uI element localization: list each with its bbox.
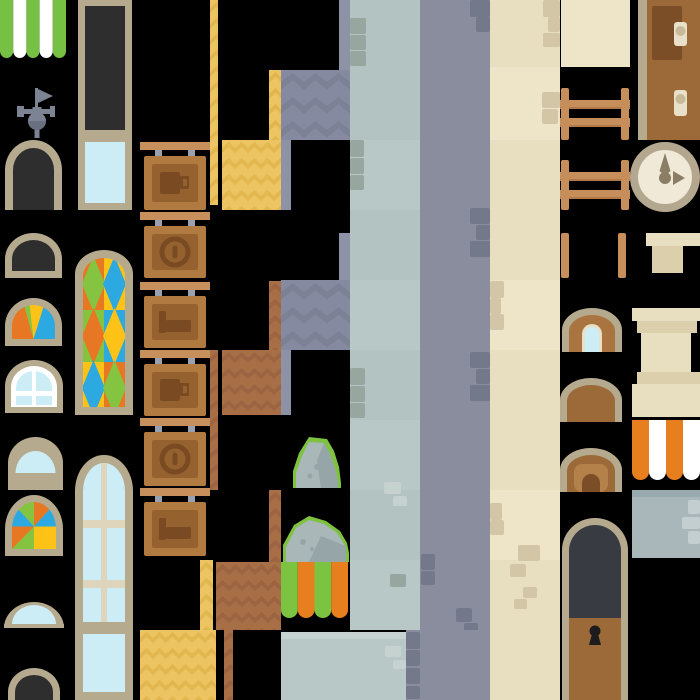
wall-sliver-brown-bottom xyxy=(224,630,233,700)
fence-upper xyxy=(560,88,630,140)
wall-block-yellow-c xyxy=(222,140,281,210)
door-arch-dark xyxy=(5,140,62,210)
sign-coin-2 xyxy=(140,418,210,486)
pillar xyxy=(632,308,700,417)
wall-strip-brown-mid xyxy=(210,350,218,490)
wall-strip-gray-mid xyxy=(339,233,350,280)
door-arch-panel xyxy=(560,448,622,492)
door-arch-window xyxy=(562,308,622,352)
weathervane xyxy=(15,88,55,138)
pillar-capital xyxy=(646,233,700,273)
awning-green-white xyxy=(0,0,66,58)
wall-bottom-slate xyxy=(406,630,490,700)
wall-strip-gray-top xyxy=(339,0,350,70)
door-arch-plain xyxy=(560,378,622,422)
wall-block-brown-c xyxy=(222,350,281,415)
window-tall-arched xyxy=(75,455,133,700)
wall-block-light xyxy=(632,490,700,558)
awning-orange-white xyxy=(632,420,700,480)
fence-lower xyxy=(560,160,630,210)
wall-strip-yellow-c xyxy=(269,70,281,140)
awning-green-orange xyxy=(281,562,348,618)
window-stained-fan-large xyxy=(5,495,63,556)
sign-bed-1 xyxy=(140,282,210,348)
wall-notch-gray-mid xyxy=(281,350,291,415)
wall-block-gray-mid xyxy=(281,280,350,350)
wall-bottom-sage xyxy=(281,632,406,700)
sprite-atlas xyxy=(0,0,700,700)
window-arch-dome xyxy=(8,437,63,490)
wall-block-yellow-bottom xyxy=(140,630,216,700)
wall-block-cream-top xyxy=(561,0,630,67)
wall-block-gray-top xyxy=(281,70,350,140)
rock-large xyxy=(281,516,349,562)
clock xyxy=(630,142,700,212)
wall-notch-gray-top xyxy=(281,140,291,210)
window-tall-stained xyxy=(75,250,133,415)
wall-strip-yellow-top xyxy=(210,0,218,205)
wall-column-sage xyxy=(350,0,420,630)
sign-mug-1 xyxy=(140,142,210,210)
rock-small xyxy=(287,437,341,488)
door-tall-keyhole xyxy=(562,518,628,700)
sign-mug-2 xyxy=(140,350,210,416)
door-arch-dark-cut xyxy=(8,668,60,700)
window-arch-four-pane xyxy=(5,360,63,413)
window-stained-fan-small xyxy=(5,298,62,346)
sign-bed-2 xyxy=(140,488,210,556)
wall-column-slate xyxy=(420,0,490,630)
wall-strip-brown-d xyxy=(269,490,281,562)
wall-column-cream xyxy=(490,0,560,700)
door-brown-top xyxy=(638,0,700,140)
wall-strip-yellow-bottom xyxy=(200,560,213,632)
wall-block-brown-d xyxy=(216,562,281,630)
fence-post-tips xyxy=(561,233,626,278)
wall-strip-brown-c xyxy=(269,281,281,350)
window-tall-split xyxy=(78,0,132,210)
sign-coin-1 xyxy=(140,212,210,278)
window-arch-dark xyxy=(5,233,62,278)
window-half-moon xyxy=(4,600,64,628)
